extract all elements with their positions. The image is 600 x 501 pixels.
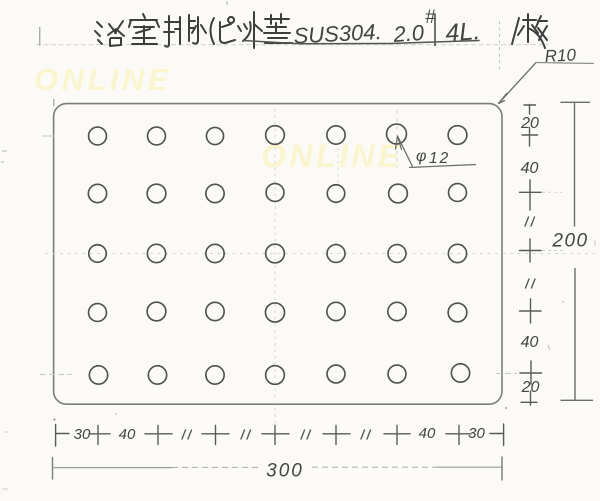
svg-text:40: 40 xyxy=(521,334,539,351)
svg-text:40: 40 xyxy=(521,160,539,177)
svg-text:30: 30 xyxy=(74,426,91,443)
svg-text:300: 300 xyxy=(266,461,304,482)
svg-text:12: 12 xyxy=(429,150,450,167)
svg-text:4L.: 4L. xyxy=(444,17,481,47)
svg-text:200: 200 xyxy=(551,231,588,252)
svg-text:40: 40 xyxy=(119,426,136,443)
svg-text:30: 30 xyxy=(468,425,485,442)
svg-text:40: 40 xyxy=(419,425,436,442)
svg-text:ONLINE: ONLINE xyxy=(34,62,172,97)
svg-text:φ: φ xyxy=(416,148,426,165)
